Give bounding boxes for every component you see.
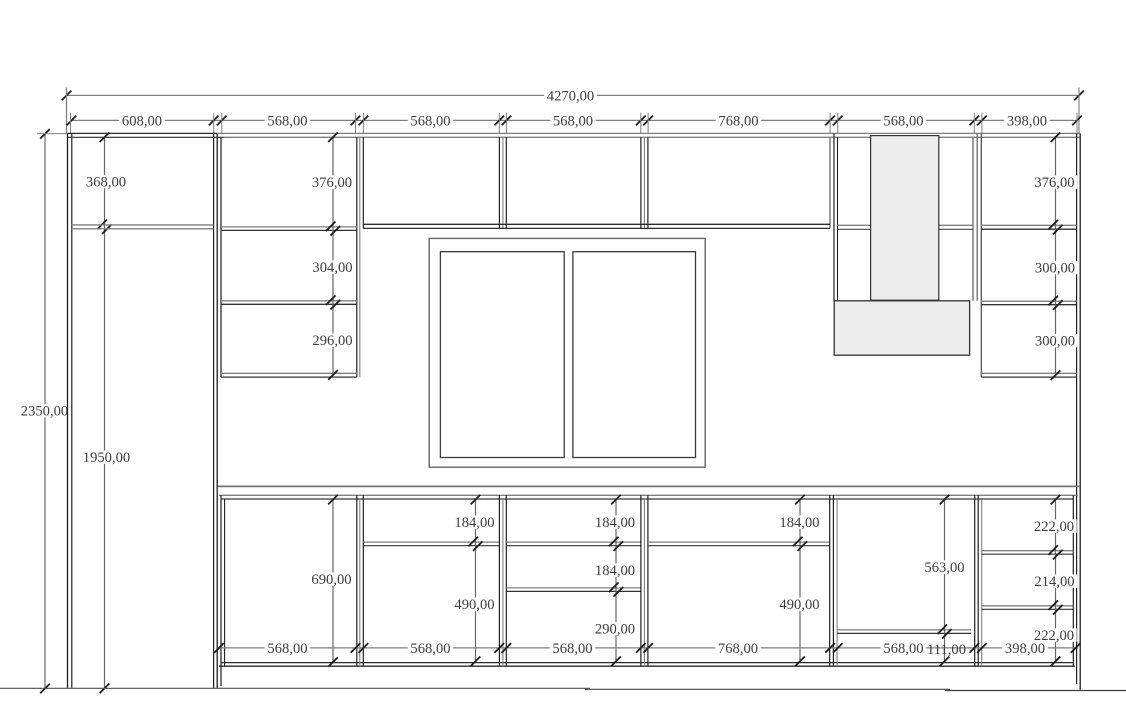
svg-text:398,00: 398,00	[1005, 641, 1045, 657]
svg-text:222,00: 222,00	[1034, 519, 1074, 535]
svg-text:563,00: 563,00	[924, 560, 964, 576]
svg-text:376,00: 376,00	[312, 175, 352, 191]
svg-text:2350,00: 2350,00	[21, 403, 68, 419]
svg-text:214,00: 214,00	[1034, 574, 1074, 590]
svg-text:768,00: 768,00	[718, 113, 758, 129]
svg-text:184,00: 184,00	[595, 515, 635, 531]
svg-text:490,00: 490,00	[779, 597, 819, 613]
svg-text:1950,00: 1950,00	[83, 450, 130, 466]
svg-text:568,00: 568,00	[410, 113, 450, 129]
svg-text:184,00: 184,00	[454, 515, 494, 531]
svg-text:368,00: 368,00	[86, 174, 126, 190]
svg-text:568,00: 568,00	[883, 113, 923, 129]
svg-text:296,00: 296,00	[312, 333, 352, 349]
svg-text:768,00: 768,00	[718, 641, 758, 657]
svg-text:376,00: 376,00	[1034, 175, 1074, 191]
svg-text:111,00: 111,00	[927, 642, 966, 658]
svg-text:690,00: 690,00	[311, 572, 351, 588]
svg-text:300,00: 300,00	[1035, 333, 1075, 349]
svg-text:184,00: 184,00	[595, 563, 635, 579]
svg-text:290,00: 290,00	[595, 621, 635, 637]
svg-text:300,00: 300,00	[1035, 260, 1075, 276]
svg-text:608,00: 608,00	[122, 113, 162, 129]
svg-text:568,00: 568,00	[267, 113, 307, 129]
svg-text:4270,00: 4270,00	[547, 88, 594, 104]
svg-text:568,00: 568,00	[553, 113, 593, 129]
svg-text:568,00: 568,00	[267, 641, 307, 657]
svg-text:490,00: 490,00	[454, 597, 494, 613]
svg-text:568,00: 568,00	[883, 641, 923, 657]
svg-text:304,00: 304,00	[312, 260, 352, 276]
svg-text:568,00: 568,00	[410, 641, 450, 657]
svg-text:398,00: 398,00	[1007, 113, 1047, 129]
svg-text:184,00: 184,00	[779, 515, 819, 531]
svg-text:568,00: 568,00	[552, 641, 592, 657]
